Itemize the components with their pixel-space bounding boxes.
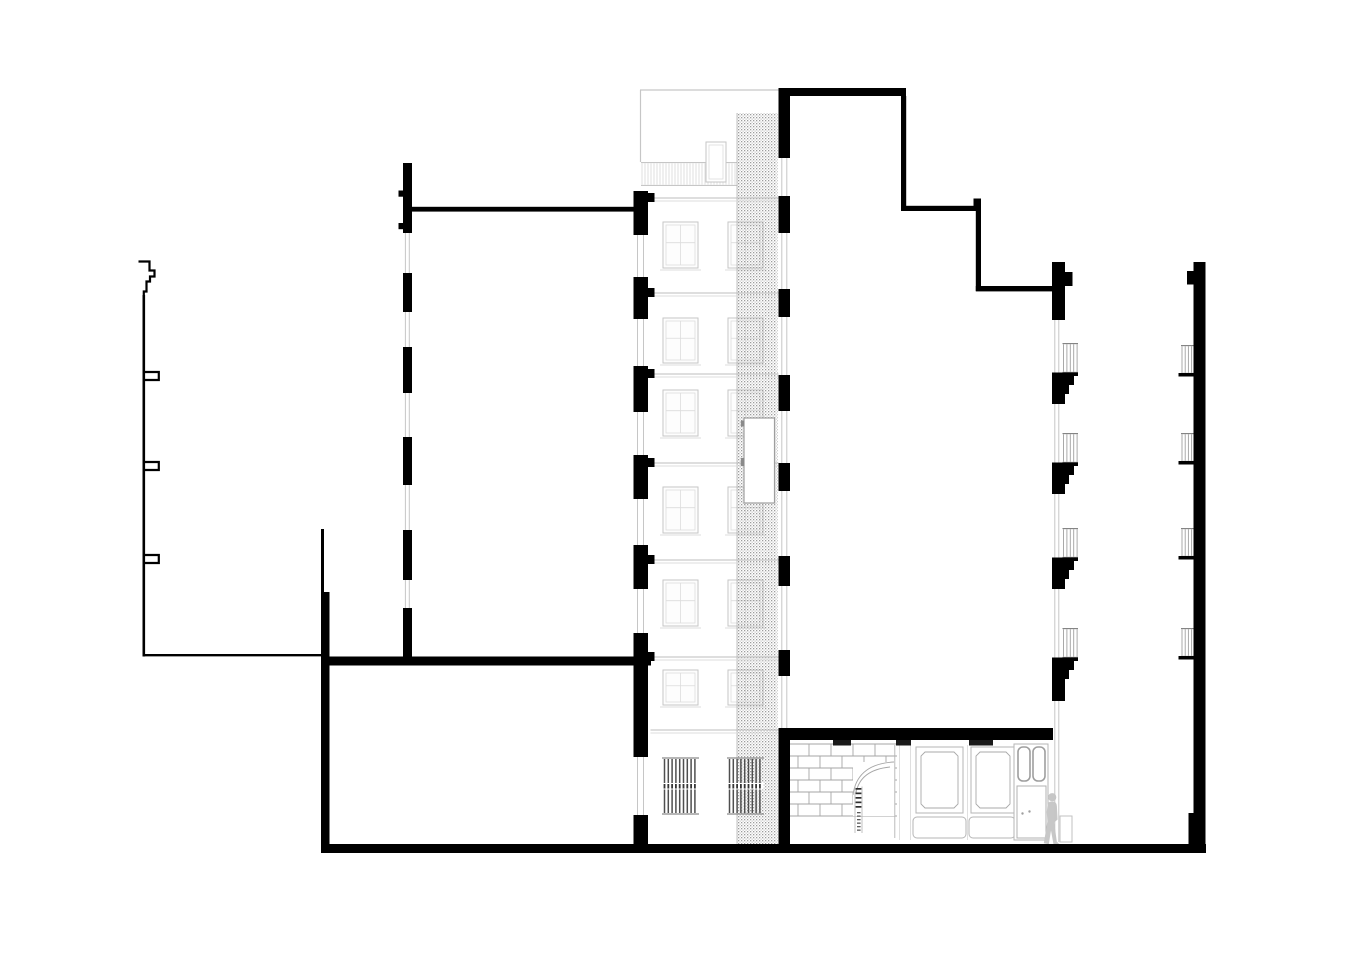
balcony-slab	[1052, 658, 1078, 662]
cornice-step	[1052, 466, 1074, 475]
basement-wall-thin	[321, 529, 324, 593]
wall-segment	[634, 455, 649, 499]
wall-segment	[403, 608, 412, 657]
upper-beam	[412, 207, 637, 212]
cornice-bump	[1187, 271, 1194, 285]
wall-segment	[634, 633, 649, 757]
cornice-step	[1052, 570, 1069, 579]
entrance-door	[1014, 744, 1048, 840]
wall-segment	[634, 366, 649, 412]
balcony-slab	[1179, 656, 1195, 660]
wall-segment	[779, 463, 791, 491]
cornice-bump	[648, 458, 655, 467]
storefront-panel	[971, 747, 1015, 813]
cornice-step	[1052, 385, 1069, 394]
cornice-bump	[648, 193, 655, 202]
cornice-bump	[648, 288, 655, 297]
cornice-step	[1052, 561, 1074, 570]
roof-step	[974, 199, 982, 207]
cornice-step	[1052, 679, 1065, 689]
wall-segment	[403, 163, 412, 233]
storefront-lower-panel	[969, 817, 1015, 838]
section-drawing-page	[0, 0, 1350, 954]
wall-base	[1189, 813, 1194, 844]
facade-window	[660, 390, 701, 438]
wall-segment	[403, 530, 412, 580]
elevator-cab	[744, 418, 775, 503]
section-drawing	[0, 0, 1350, 954]
storefront-lower-panel	[913, 817, 966, 838]
balcony-slab	[1179, 461, 1195, 465]
cornice-bump	[648, 555, 655, 564]
cornice-step	[1052, 670, 1069, 679]
basement-floor	[329, 657, 651, 666]
elevator-guide-tick	[741, 421, 744, 427]
street-step-block	[1060, 816, 1072, 842]
elevator-guide-tick	[741, 458, 744, 466]
cornice-step	[1052, 689, 1065, 701]
door-handle	[1021, 812, 1023, 814]
cornice-step	[1052, 661, 1074, 670]
ground-slab	[321, 844, 1206, 853]
door-panel	[1017, 786, 1046, 838]
door-handle	[1028, 810, 1030, 812]
wall-segment	[403, 273, 412, 312]
wall-solid	[1194, 262, 1206, 844]
basement-wall	[321, 592, 330, 848]
beam-tab	[833, 740, 851, 746]
cornice-bump	[1065, 272, 1073, 286]
balcony-slab	[1052, 373, 1078, 377]
door-glass-pane	[1033, 747, 1045, 781]
roof-step	[976, 206, 981, 291]
cornice-step	[1052, 475, 1069, 484]
facade-window	[660, 318, 701, 365]
door-glass-pane	[1018, 747, 1030, 781]
facade-window	[660, 670, 701, 707]
wall-segment	[634, 545, 649, 589]
wall-segment	[779, 88, 791, 158]
facade-window	[660, 487, 701, 535]
cornice-step	[1052, 579, 1065, 589]
facade-window	[660, 580, 701, 628]
elevator-box	[741, 418, 775, 503]
wall-segment	[403, 347, 412, 393]
storefront-panel	[916, 747, 963, 813]
beam-tab	[969, 740, 993, 746]
balcony-slab	[1052, 558, 1078, 562]
wall-segment	[403, 437, 412, 485]
beam-tab	[896, 740, 911, 746]
wall-segment	[779, 650, 791, 676]
cornice-bump	[648, 369, 655, 378]
wall-segment	[779, 740, 791, 848]
balcony-slab	[1052, 463, 1078, 467]
wall-nub	[399, 223, 404, 229]
wall-segment	[779, 375, 791, 411]
roof-step	[976, 286, 1053, 291]
roof-bar	[779, 88, 907, 96]
wall-top-block	[1052, 262, 1065, 320]
balcony-slab	[1179, 373, 1195, 377]
paper-background	[0, 0, 1350, 954]
storefront-beam	[779, 728, 1054, 740]
cornice-step	[1052, 394, 1065, 404]
facade-window	[660, 222, 701, 270]
wall-segment	[779, 196, 791, 233]
cornice-step	[1052, 484, 1065, 494]
cornice-step	[1052, 376, 1074, 385]
wall-segment	[634, 277, 649, 319]
wall-segment	[779, 556, 791, 586]
balcony-slab	[1179, 556, 1195, 560]
wall-segment	[779, 289, 791, 317]
roof-step	[901, 206, 981, 211]
roof-step	[901, 96, 906, 211]
wall-nub	[399, 191, 404, 197]
wall-segment	[634, 191, 649, 235]
